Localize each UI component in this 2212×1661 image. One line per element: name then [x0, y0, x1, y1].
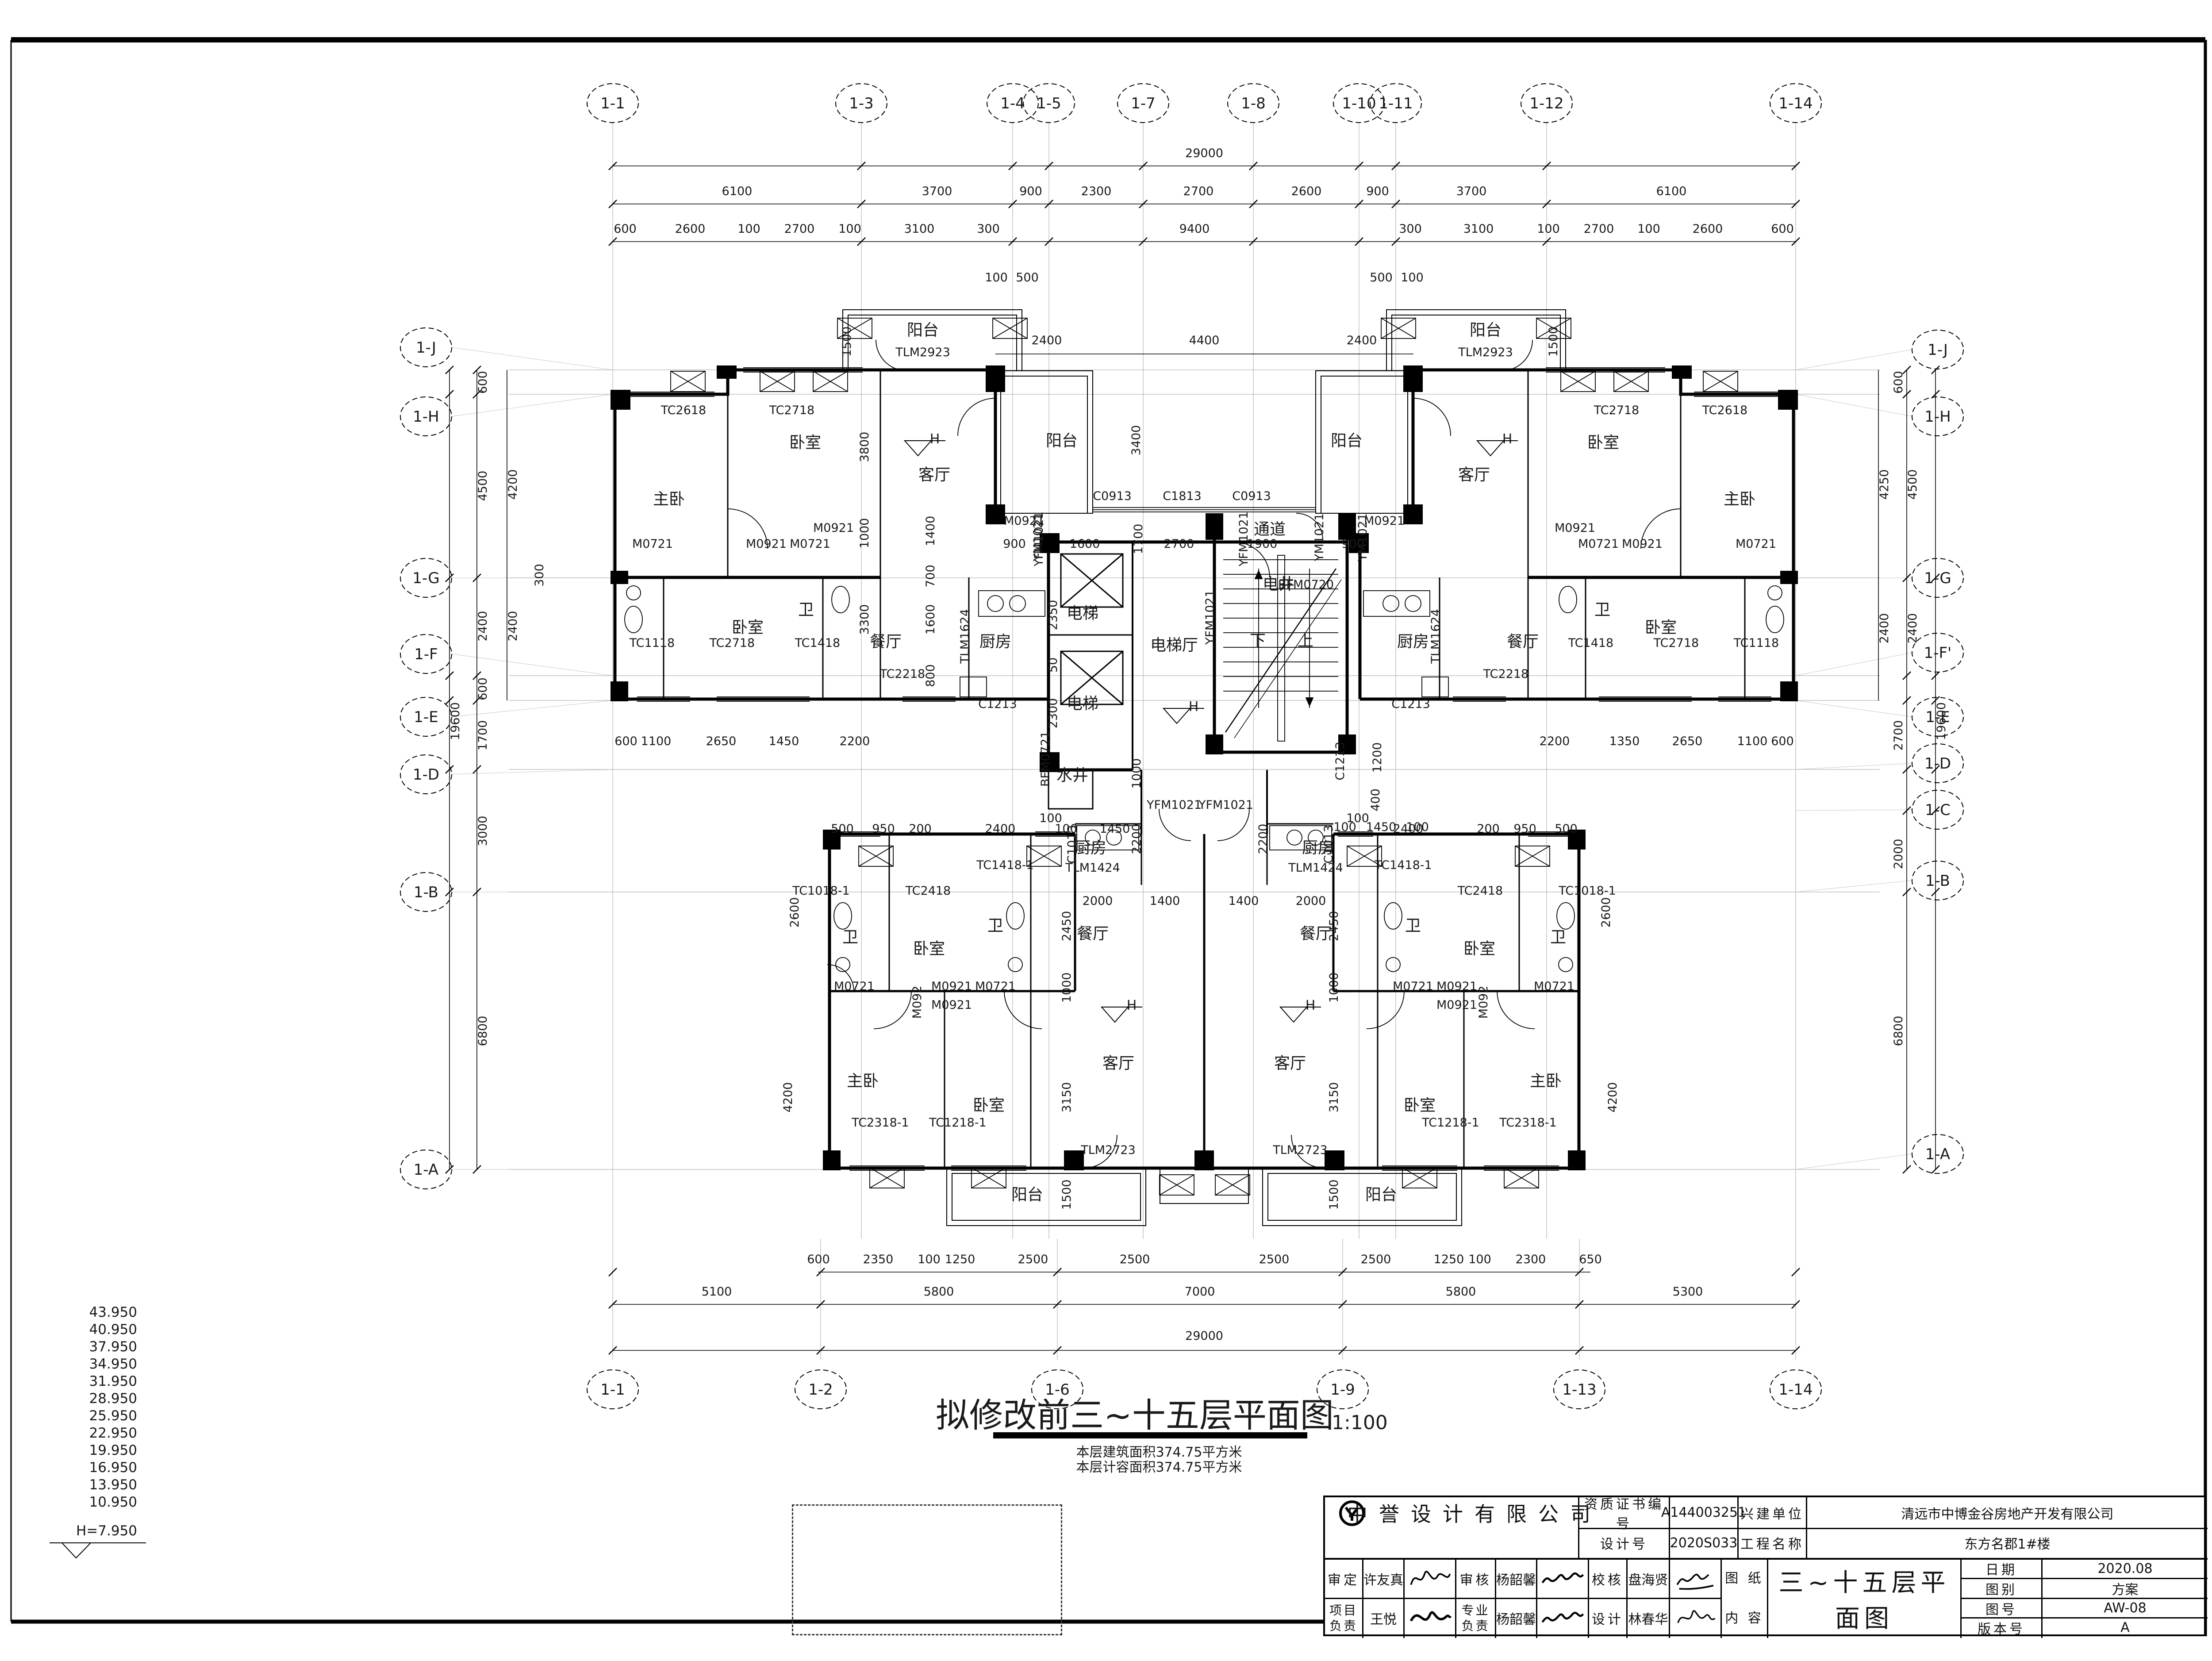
elevation-value: 16.950	[89, 1460, 137, 1476]
axis-right-1-F'-label: 1-F'	[1924, 644, 1952, 662]
tubie-label: 图别	[1962, 1579, 2041, 1598]
dim-text: 3150	[1060, 1082, 1074, 1113]
dim-text: 2700	[784, 222, 815, 236]
design-no-value: 2020S033	[1670, 1528, 1737, 1558]
dim-text: 4400	[1189, 334, 1220, 347]
tag-label: M092	[1477, 986, 1490, 1019]
dim-text: 950	[1513, 822, 1536, 836]
tag-label: M0721	[1534, 980, 1575, 993]
room-label: 厨房	[1397, 633, 1429, 651]
dim-text: 2450	[1060, 911, 1074, 942]
tag-label: TLM1424	[1065, 861, 1120, 875]
level-mark-label: H	[1189, 699, 1199, 715]
date-value: 2020.08	[2043, 1559, 2208, 1578]
dim-text: 2500	[1120, 1253, 1150, 1266]
dim-text: 600	[476, 677, 490, 700]
level-mark-triangle	[1164, 708, 1190, 723]
dim-text: 2500	[1361, 1253, 1391, 1266]
room-label: 主卧	[1530, 1072, 1562, 1090]
signature-jiaohe	[1670, 1559, 1720, 1598]
tuhao-value: AW-08	[2043, 1599, 2208, 1617]
tag-label: BFM0721	[1039, 731, 1052, 787]
dim-text: 1000	[858, 518, 872, 549]
dim-text: 2400	[1878, 613, 1891, 644]
tag-label: TC1418	[1568, 636, 1613, 650]
tag-label: TC2718	[1594, 404, 1639, 417]
room-label: 卧室	[732, 619, 764, 637]
dim-text: 100	[918, 1253, 941, 1266]
dim-text: 4200	[1606, 1082, 1620, 1113]
tag-label: M0921	[746, 537, 787, 551]
xiangmu-label: 项目 负责	[1325, 1598, 1362, 1638]
room-label: 卧室	[1404, 1096, 1436, 1115]
dim-text: 5100	[702, 1285, 732, 1299]
room-label: 阳台	[1011, 1186, 1043, 1204]
dim-text: 1000	[1130, 758, 1144, 789]
dim-text: 4500	[476, 471, 490, 501]
tag-label: M0921	[1436, 980, 1477, 993]
tag-label: YFM1021	[1146, 798, 1202, 812]
cert-value: A144003251	[1670, 1497, 1737, 1528]
room-label: 客厅	[1458, 466, 1490, 484]
tag-label: M0721	[834, 980, 875, 993]
tag-label: YM1021	[1356, 513, 1370, 562]
tag-label: TLM2723	[1272, 1143, 1328, 1157]
dim-text: 2600	[788, 897, 802, 928]
sheji-label: 设计	[1589, 1598, 1626, 1638]
plan-title: 拟修改前三~十五层平面图	[936, 1396, 1334, 1435]
dim-text: 3800	[858, 432, 872, 462]
signature-sheji	[1670, 1598, 1720, 1638]
tag-label: M0921	[931, 980, 972, 993]
shenhe-name: 杨韶馨	[1496, 1559, 1536, 1598]
level-mark-triangle	[1280, 1007, 1307, 1022]
axis-top-1-14-label: 1-14	[1778, 95, 1813, 112]
axis-left-1-D-label: 1-D	[413, 766, 439, 784]
tag-label: M0921	[813, 521, 854, 535]
tag-label: TLM2923	[895, 346, 950, 359]
jiaohe-label: 校核	[1589, 1559, 1626, 1598]
tag-label: TC2318-1	[1499, 1116, 1556, 1130]
tag-label: YM1021	[1313, 513, 1326, 562]
elevation-value: 40.950	[89, 1322, 137, 1338]
tag-label: TC2418	[905, 884, 951, 898]
room-label: 主卧	[847, 1072, 879, 1090]
axis-left-1-G-label: 1-G	[412, 569, 440, 587]
dim-text: 1500	[1547, 327, 1560, 357]
dashed-placeholder-box	[792, 1504, 1062, 1635]
date-label: 日期	[1962, 1559, 2041, 1578]
dim-text: 100	[1637, 222, 1660, 236]
dim-text: 2600	[675, 222, 706, 236]
plan-scale: 1:100	[1332, 1411, 1388, 1434]
tag-label: YFM1021	[1237, 511, 1251, 567]
tag-label: TLM2923	[1458, 346, 1513, 359]
dim-text: 2300	[1046, 698, 1060, 729]
dim-text: 600	[476, 371, 490, 394]
room-label: 卫	[987, 917, 1003, 935]
tag-label: M0721	[790, 537, 830, 551]
tag-label: TC1418-1	[976, 858, 1033, 872]
tag-label: TC1418	[795, 636, 840, 650]
dim-text: 50	[1046, 657, 1060, 673]
room-label: 卧室	[973, 1096, 1005, 1115]
level-mark-triangle	[905, 441, 931, 456]
dim-text: 600	[614, 222, 637, 236]
dim-text: 9400	[1179, 222, 1210, 236]
dim-text: 600	[1771, 222, 1794, 236]
shending-name: 许友真	[1363, 1559, 1403, 1598]
version-value: A	[2043, 1619, 2208, 1637]
dim-text: 2500	[1018, 1253, 1048, 1266]
tag-label: TC2218	[879, 667, 925, 681]
drawing-content-title: 三~十五层平面图	[1768, 1559, 1960, 1638]
axis-top-1-3-label: 1-3	[849, 95, 874, 112]
room-label: 电梯厅	[1150, 636, 1198, 654]
dim-text: 2400	[476, 611, 490, 642]
dim-text: 500	[1016, 271, 1039, 285]
axis-top-1-12-label: 1-12	[1529, 95, 1563, 112]
tag-label: C1213	[978, 697, 1017, 711]
room-label: 卫	[842, 928, 858, 946]
dim-text: 3150	[1327, 1082, 1341, 1113]
room-label: 卧室	[789, 434, 821, 452]
dim-text: 900	[1019, 185, 1042, 198]
elevation-value: 31.950	[89, 1373, 137, 1389]
axis-left-1-J-label: 1-J	[416, 339, 436, 357]
tag-label: C1813	[1163, 489, 1202, 503]
tag-label: TC2618	[661, 404, 706, 417]
dim-text: 19600	[1935, 702, 1948, 740]
room-label: 卫	[1594, 601, 1610, 619]
dim-text: 1250	[945, 1253, 975, 1266]
dim-text: 1700	[1132, 524, 1145, 554]
dim-text: 1500	[1327, 1180, 1341, 1210]
room-label: 主卧	[653, 490, 685, 508]
tag-label: TLM1624	[1429, 609, 1443, 664]
dim-text: 2700	[1164, 537, 1194, 551]
room-label: 阳台	[907, 321, 939, 339]
elevation-value: 34.950	[89, 1356, 137, 1372]
tag-label: YFM1021	[1032, 511, 1046, 567]
dim-text: 3000	[476, 816, 490, 846]
axis-bottom-1-1-label: 1-1	[600, 1381, 625, 1399]
dim-text: 2650	[1672, 734, 1703, 748]
axis-top-1-1-label: 1-1	[600, 95, 625, 112]
dim-text: 600	[614, 734, 637, 748]
tag-label: TC2418	[1457, 884, 1503, 898]
room-label: 阳台	[1365, 1186, 1397, 1204]
dim-text: 6100	[722, 185, 753, 198]
tag-label: TC2618	[1702, 404, 1747, 417]
dim-text: 2200	[840, 734, 870, 748]
tag-label: M0721	[975, 980, 1016, 993]
room-label: 客厅	[918, 466, 950, 484]
level-mark-triangle	[1102, 1007, 1128, 1022]
elevation-value: 10.950	[89, 1494, 137, 1510]
tag-label: TLM1424	[1288, 861, 1343, 875]
axis-right-1-J-label: 1-J	[1928, 341, 1948, 359]
dim-text: 4500	[1906, 469, 1920, 500]
dim-text: 1450	[1100, 822, 1130, 836]
signature-xiangmu	[1405, 1598, 1455, 1638]
room-label: 厨房	[979, 633, 1011, 651]
room-label: 餐厅	[1077, 925, 1109, 943]
axis-top-1-4-label: 1-4	[1000, 95, 1025, 112]
elevation-value: 37.950	[89, 1339, 137, 1355]
dim-text: 400	[1369, 788, 1382, 811]
dim-text: 1500	[1060, 1180, 1074, 1210]
tag-label: TC1218-1	[1421, 1116, 1479, 1130]
room-label: 上	[1298, 632, 1313, 650]
dim-text: 100	[1537, 222, 1560, 236]
builder-value: 清远市中博金谷房地产开发有限公司	[1807, 1497, 2208, 1528]
room-label: 卫	[798, 601, 814, 619]
tuzhi-label: 图 纸	[1722, 1564, 1767, 1590]
dim-text: 1450	[1366, 820, 1397, 834]
dim-text: 2200	[1130, 824, 1144, 854]
level-mark-triangle	[1477, 441, 1504, 456]
dim-text: 100	[1468, 1253, 1491, 1266]
axis-bottom-1-13-label: 1-13	[1562, 1381, 1596, 1399]
dim-text: 4200	[506, 469, 520, 500]
dim-text: 2700	[1183, 185, 1214, 198]
tag-label: C1013	[1322, 825, 1336, 864]
design-no-label: 设计号	[1579, 1528, 1669, 1558]
dim-text: 3100	[904, 222, 935, 236]
axis-left-1-E-label: 1-E	[414, 708, 438, 726]
datum-symbol	[50, 1543, 146, 1558]
tag-label: TC2718	[1653, 636, 1699, 650]
elevation-value: 22.950	[89, 1425, 137, 1441]
dim-text: 29000	[1185, 146, 1223, 160]
room-label: 电梯	[1067, 695, 1098, 713]
dim-text: 3100	[1463, 222, 1494, 236]
elevation-value: 25.950	[89, 1408, 137, 1424]
dim-text: 3700	[1456, 185, 1487, 198]
dim-text: 2350	[1046, 600, 1060, 631]
dim-text: 1600	[1070, 537, 1100, 551]
room-label: 餐厅	[1300, 925, 1332, 943]
dim-text: 1350	[1609, 734, 1640, 748]
dim-text: 2400	[1906, 613, 1920, 644]
axis-top-1-5-label: 1-5	[1037, 95, 1061, 112]
tag-label: TC1118	[629, 636, 675, 650]
dim-text: 2350	[863, 1253, 894, 1266]
tag-label: TC2318-1	[851, 1116, 909, 1130]
dim-text: 600	[807, 1253, 830, 1266]
walls-structural	[615, 370, 1793, 1168]
axis-top-1-7-label: 1-7	[1131, 95, 1156, 112]
dim-text: 2400	[1393, 822, 1424, 836]
elevation-value: 43.950	[89, 1304, 137, 1320]
version-label: 版本号	[1962, 1619, 2041, 1637]
dim-text: 3400	[1129, 425, 1143, 456]
axis-left-1-F-label: 1-F	[414, 646, 438, 663]
dim-text: 2400	[985, 822, 1016, 836]
title-block: 中誉设计有限公司 资质证书编号 A144003251 兴建单位 清远市中博金谷房…	[1323, 1496, 2206, 1636]
dim-text: 6100	[1656, 185, 1687, 198]
room-label: 卧室	[1587, 434, 1619, 452]
dim-text: 1500	[840, 327, 854, 357]
tag-label: TC1418-1	[1374, 858, 1432, 872]
tag-label: M0721	[632, 537, 673, 551]
dim-text: 1000	[1327, 973, 1341, 1003]
dim-text: 2700	[1892, 720, 1905, 751]
elevation-datum: H=7.950	[76, 1523, 137, 1539]
axis-right-1-B-label: 1-B	[1925, 872, 1950, 890]
company-name: 中誉设计有限公司	[1373, 1497, 1576, 1528]
signature-shending	[1405, 1559, 1455, 1598]
dim-text: 2500	[1259, 1253, 1290, 1266]
room-label: 卧室	[913, 940, 945, 958]
dim-text: 5800	[1446, 1285, 1476, 1299]
axis-top-1-8-label: 1-8	[1241, 95, 1266, 112]
dim-text: 6800	[1892, 1016, 1905, 1046]
dim-text: 3300	[858, 604, 872, 635]
elevation-value: 28.950	[89, 1391, 137, 1407]
elevation-value: 13.950	[89, 1477, 137, 1493]
axis-right-1-G-label: 1-G	[1924, 569, 1951, 587]
tag-label: M0721	[1578, 537, 1619, 551]
tag-label: M0721	[1393, 980, 1433, 993]
dim-text: 2000	[1892, 839, 1905, 869]
zhuanye-label: 专业 负责	[1456, 1598, 1495, 1638]
room-label: 客厅	[1274, 1054, 1306, 1073]
elevation-value: 19.950	[89, 1442, 137, 1458]
axis-bottom-1-2-label: 1-2	[808, 1381, 833, 1399]
dim-text: 2700	[1584, 222, 1614, 236]
dim-text: 2600	[1599, 897, 1613, 928]
shenhe-label: 审核	[1456, 1559, 1495, 1598]
room-label: 主卧	[1724, 490, 1755, 508]
tag-label: M0921	[1364, 514, 1405, 528]
level-mark-label: H	[1502, 431, 1513, 447]
axis-left-1-A-label: 1-A	[414, 1161, 438, 1179]
dim-text: 2400	[1347, 334, 1377, 347]
axis-right-1-A-label: 1-A	[1925, 1146, 1950, 1163]
tubie-value: 方案	[2043, 1579, 2208, 1598]
signature-zhuanye	[1537, 1598, 1588, 1638]
room-label: 通道	[1254, 520, 1286, 538]
room-label: 水井	[1056, 766, 1088, 784]
dim-text: 100	[985, 271, 1008, 285]
tag-label: TC2218	[1483, 667, 1528, 681]
xiangmu-name: 王悦	[1363, 1598, 1403, 1638]
tag-label: TC2718	[709, 636, 755, 650]
floor-plan-canvas: 1-11-31-41-51-71-81-101-111-121-141-11-2…	[0, 0, 2212, 1659]
dim-text: 4250	[1878, 469, 1891, 500]
room-label: 阳台	[1470, 321, 1502, 339]
room-label: 电梯	[1067, 604, 1098, 623]
shending-label: 审定	[1325, 1559, 1362, 1598]
tuhao-label: 图号	[1962, 1599, 2041, 1617]
axis-bottom-1-9-label: 1-9	[1330, 1381, 1355, 1399]
axis-right-1-D-label: 1-D	[1924, 755, 1951, 773]
tag-label: C1013	[1065, 825, 1079, 864]
project-value: 东方名郡1#楼	[1807, 1528, 2208, 1558]
room-label: 下	[1250, 632, 1266, 650]
dim-text: 2200	[1540, 734, 1570, 748]
tag-label: TLM1624	[958, 609, 972, 664]
dim-text: 500	[1370, 271, 1393, 285]
axis-left-1-H-label: 1-H	[413, 408, 439, 426]
dim-text: 600	[1892, 371, 1905, 394]
dim-text: 100	[1333, 820, 1356, 834]
dim-text: 2650	[706, 734, 737, 748]
tag-label: M0721	[1736, 537, 1776, 551]
level-mark-label: H	[930, 431, 940, 447]
axis-bottom-1-14-label: 1-14	[1778, 1381, 1813, 1399]
tag-label: C0913	[1232, 489, 1271, 503]
zhuanye-name: 杨韶馨	[1496, 1598, 1536, 1638]
dim-text: 1100	[1737, 734, 1768, 748]
dim-text: 900	[1003, 537, 1026, 551]
dim-text: 3700	[922, 185, 952, 198]
dim-text: 100	[1401, 271, 1424, 285]
dim-text: 300	[533, 564, 546, 587]
dim-text: 7000	[1185, 1285, 1215, 1299]
dim-text: 200	[1477, 822, 1500, 836]
dim-text: 2000	[1296, 894, 1326, 908]
dim-text: 700	[924, 565, 937, 588]
tag-label: M092	[910, 986, 924, 1019]
dim-text: 300	[977, 222, 1000, 236]
dim-text: 500	[1555, 822, 1578, 836]
tag-label: YFM1021	[1203, 590, 1217, 645]
dim-text: 1000	[1060, 973, 1074, 1003]
dim-text: 1450	[769, 734, 799, 748]
dim-text: 900	[1366, 185, 1389, 198]
dim-text: 4200	[781, 1082, 795, 1113]
dim-text: 2300	[1516, 1253, 1546, 1266]
project-label: 工程名称	[1739, 1528, 1806, 1558]
dim-text: 300	[1399, 222, 1422, 236]
dim-text: 1400	[1229, 894, 1259, 908]
dim-text: 650	[1579, 1253, 1602, 1266]
dim-text: 1100	[641, 734, 672, 748]
dim-text: 600	[1771, 734, 1794, 748]
sheji-name: 林春华	[1628, 1598, 1669, 1638]
room-label: 卧室	[1645, 619, 1677, 637]
dim-text: 100	[838, 222, 861, 236]
level-mark-label: H	[1127, 998, 1137, 1013]
room-label: 餐厅	[870, 633, 902, 651]
dim-text: 800	[924, 664, 937, 687]
dim-text: 1900	[1247, 537, 1278, 551]
dim-text: 1400	[924, 516, 937, 546]
neirong-label: 内 容	[1722, 1603, 1767, 1630]
drawing-sheet: 1-11-31-41-51-71-81-101-111-121-141-11-2…	[0, 0, 2212, 1659]
room-label: 卫	[1550, 928, 1566, 946]
tag-label: TC1118	[1733, 636, 1779, 650]
cert-label: 资质证书编号	[1579, 1497, 1669, 1528]
tag-label: TC1018-1	[1558, 884, 1616, 898]
dim-text: 2400	[1032, 334, 1062, 347]
dim-text: 2600	[1291, 185, 1322, 198]
dim-text: 1200	[1371, 742, 1384, 773]
dim-text: 1250	[1434, 1253, 1464, 1266]
dim-text: 19600	[449, 702, 462, 740]
dim-text: 1600	[924, 604, 937, 635]
dim-text: 2200	[1256, 824, 1270, 854]
plan-note-1: 本层建筑面积374.75平方米	[1076, 1445, 1242, 1460]
dim-text: 200	[909, 822, 932, 836]
jiaohe-name: 盘海贤	[1628, 1559, 1669, 1598]
room-label: 卧室	[1463, 940, 1495, 958]
builder-label: 兴建单位	[1739, 1497, 1806, 1528]
dim-text: 950	[872, 822, 895, 836]
